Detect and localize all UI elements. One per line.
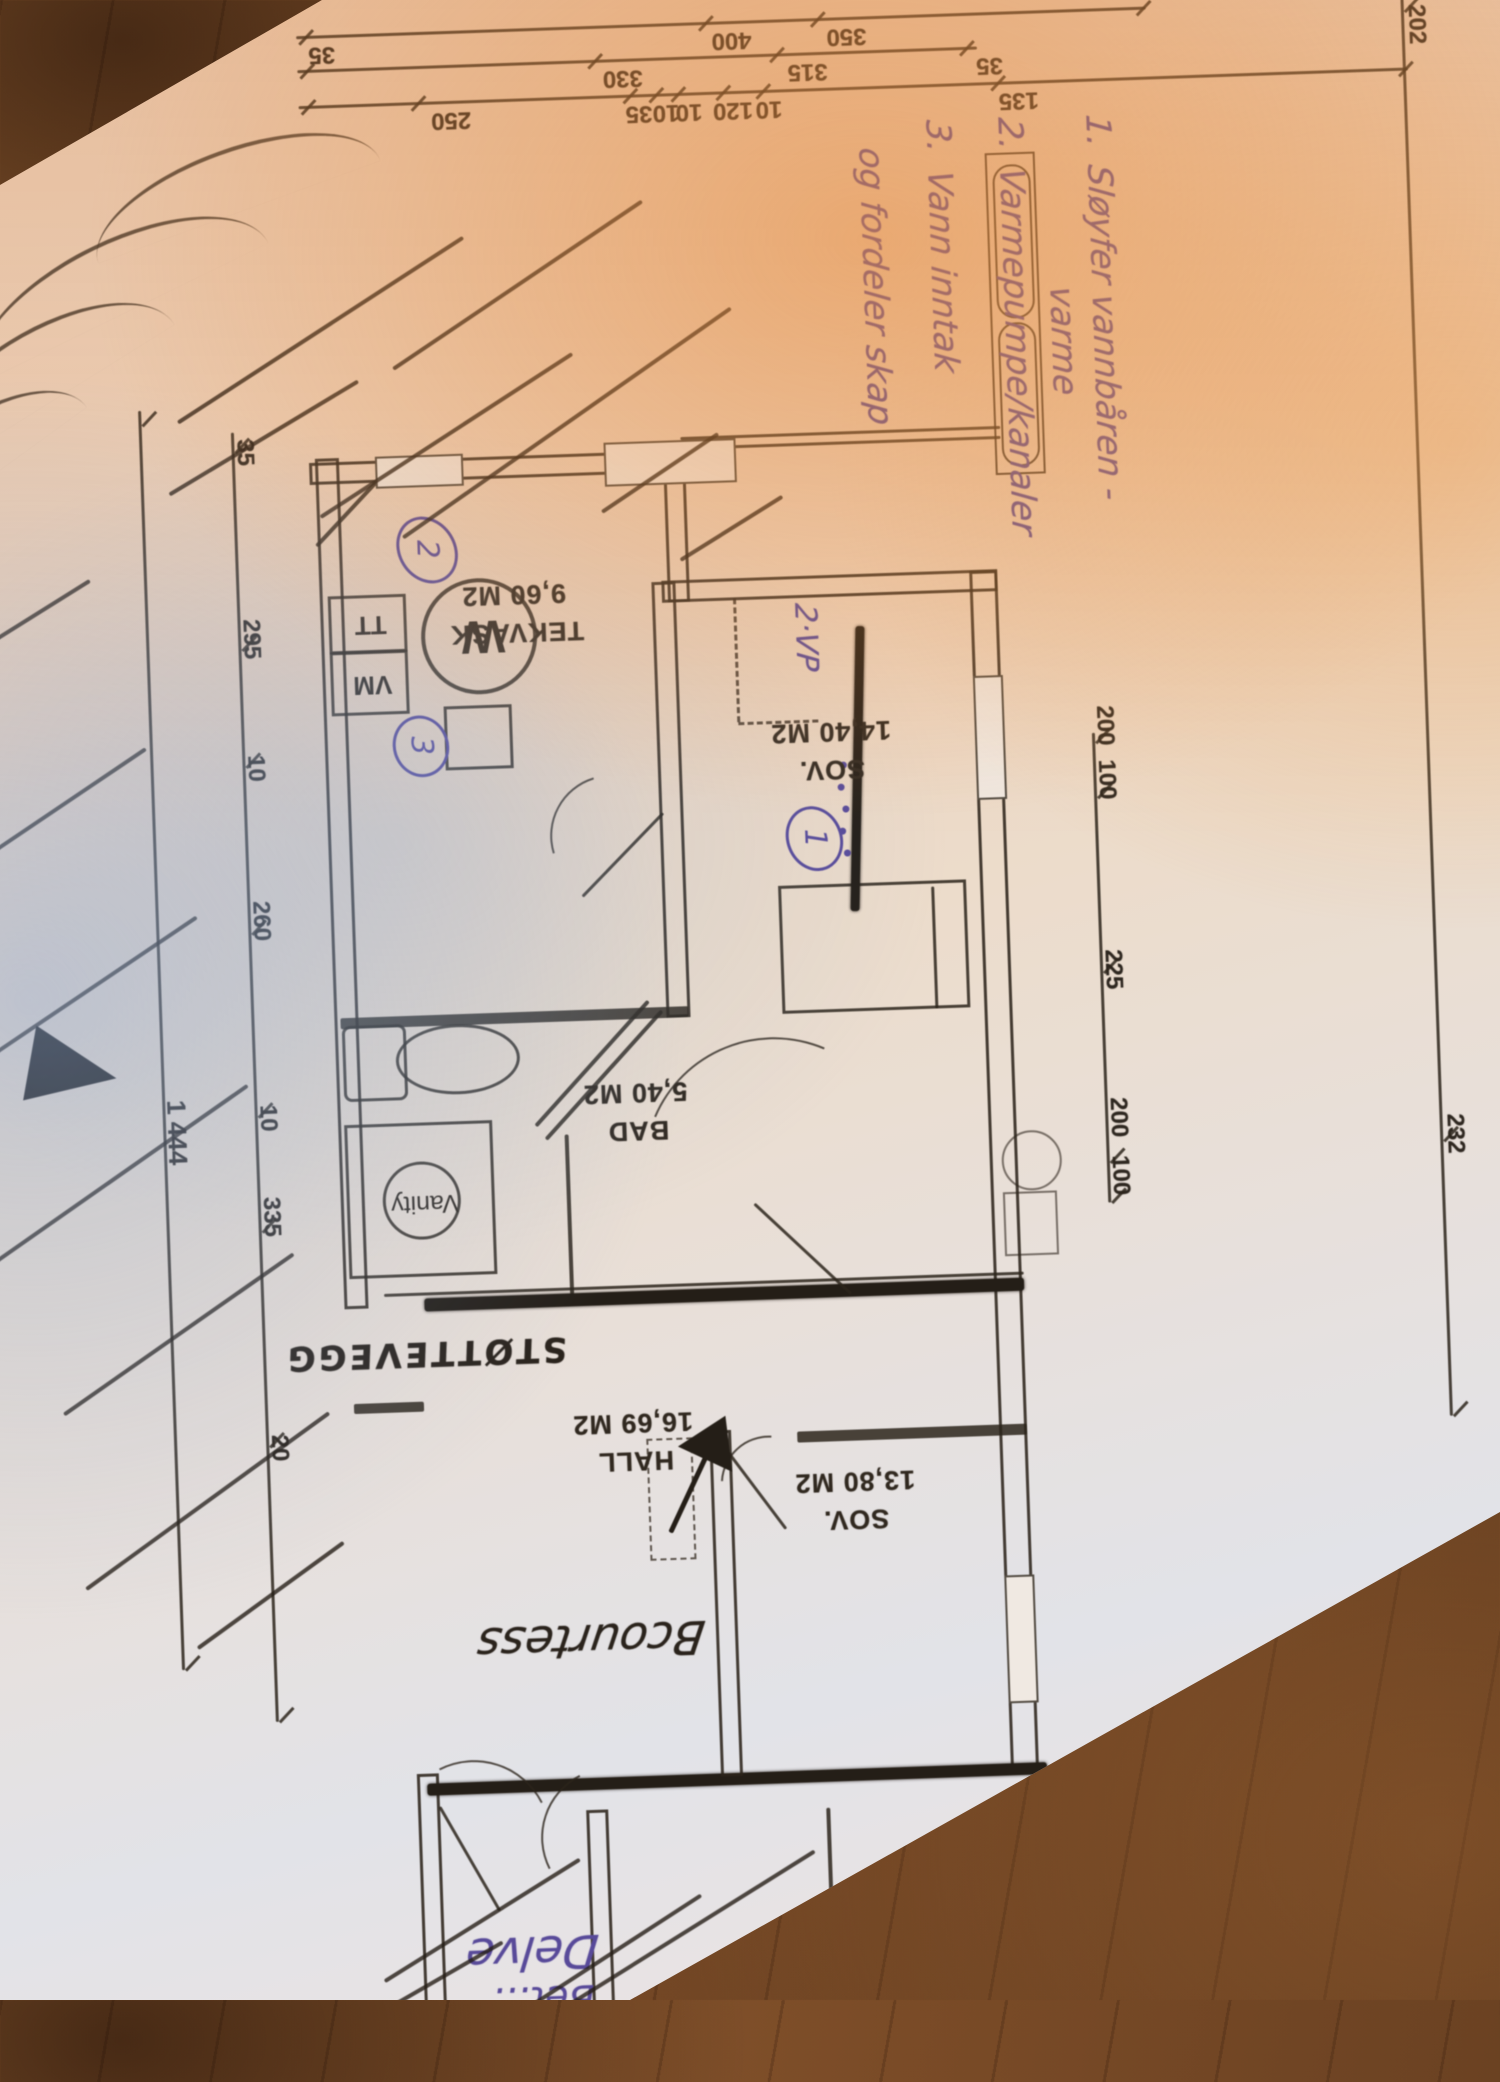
- circled-1-digit: 1: [797, 829, 833, 849]
- dim-left-200a: 200: [1104, 1097, 1133, 1138]
- hatch-stroke: [680, 495, 784, 562]
- outdoor-circle: [1001, 1129, 1063, 1191]
- bed-sov1: [778, 879, 970, 1013]
- hatch-stroke: [0, 1084, 249, 1270]
- note-1-number: 1.: [1077, 113, 1118, 149]
- note-1-line2: varme: [1041, 284, 1085, 396]
- note-3-line2: og fordeler skap: [850, 146, 900, 427]
- vp-note: 2·VP: [787, 602, 824, 672]
- vanity-label: Vanity: [391, 1188, 460, 1219]
- dim-row1-400: 400: [711, 25, 752, 54]
- window-sov1: [973, 675, 1007, 800]
- annex-status: IKKE UTLEIED: [740, 1935, 927, 1970]
- dim-row3-10c: 10: [652, 98, 680, 127]
- dimension-tick: [185, 1655, 201, 1672]
- room-area-hall: 16,69 M2: [572, 1405, 694, 1440]
- note-3-line1: Vann inntak: [919, 169, 966, 375]
- dimension-tick: [1453, 1401, 1469, 1418]
- solid-triangle-mark: [23, 1026, 123, 1116]
- hatch-stroke: [778, 1830, 960, 1959]
- dimension-tick: [279, 1707, 295, 1724]
- heating-dot: [844, 849, 851, 856]
- hatch-stroke: [0, 580, 91, 705]
- fixture-box-3: [444, 704, 514, 770]
- room-area-sov2: 13,80 M2: [794, 1464, 916, 1499]
- dim-row3-135: 135: [998, 85, 1039, 114]
- window-tekvask: [603, 438, 736, 487]
- wall-bad-left: [565, 1134, 575, 1294]
- wall-annex-2: [826, 1808, 837, 1998]
- hatch-stroke: [63, 1253, 294, 1416]
- hall-script-note: Bcourtess: [473, 1610, 708, 1672]
- floor-plan-paper: W VM TT Vanity: [0, 0, 1500, 2000]
- dim-line-left-far: [1400, 0, 1452, 1416]
- dim-left-225: 225: [1098, 949, 1127, 990]
- heating-dot: [842, 805, 849, 812]
- washer-label: VM: [353, 669, 393, 701]
- hatch-stroke: [850, 1928, 1014, 2048]
- vp-zone-dash-v: [733, 598, 740, 722]
- note-2-number: 2.: [989, 116, 1030, 152]
- annex-area: 15,42 M2: [718, 1969, 831, 2002]
- circled-1: 1: [776, 798, 853, 880]
- room-area-sov1: 14,40 M2: [770, 714, 892, 749]
- room-label-sov1: SOV.: [798, 753, 865, 786]
- toilet-bowl: [395, 1022, 521, 1096]
- circled-2-digit: 2: [409, 540, 445, 560]
- dim-row1-350: 350: [826, 21, 867, 50]
- dim-left-232: 232: [1440, 1113, 1469, 1154]
- hatch-stroke: [392, 200, 643, 371]
- dim-line-overall: [138, 411, 185, 1670]
- wall-sov2-bottom: [797, 1424, 1027, 1443]
- dim-row2-35: 35: [976, 51, 1004, 80]
- hatch-stroke: [85, 1412, 330, 1591]
- room-area-tekvask: 9,60 M2: [461, 577, 567, 612]
- wall-exterior-sov1: [661, 569, 998, 603]
- wall-connector: [354, 1402, 424, 1414]
- dim-row3-10a: 10: [755, 94, 783, 123]
- room-label-sov2: SOV.: [823, 1502, 890, 1535]
- dim-row2-315: 315: [787, 57, 828, 86]
- dim-row3-35: 35: [625, 99, 653, 128]
- dim-left-100b: 100: [1092, 759, 1121, 800]
- dim-right-260: 260: [246, 901, 275, 942]
- window-sov2: [1004, 1574, 1038, 1703]
- stottevegg-note: STØTTEVEGG: [284, 1329, 568, 1379]
- hatch-stroke: [705, 1886, 923, 2034]
- room-label-hall: HALL: [598, 1444, 675, 1478]
- hatch-stroke: [0, 748, 147, 902]
- room-area-bad: 5,40 M2: [582, 1075, 688, 1110]
- outdoor-box: [1003, 1190, 1059, 1256]
- room-label-bad: BAD: [607, 1114, 670, 1147]
- dim-line-row3: [299, 67, 1408, 109]
- dim-row3-250: 250: [431, 105, 472, 134]
- floor-plan-drawing: W VM TT Vanity: [0, 0, 1500, 2026]
- dim-left-200b: 200: [1090, 705, 1119, 746]
- dryer-label: TT: [354, 609, 387, 641]
- note-1-line1: Sløyfer vannbåren -: [1079, 163, 1131, 502]
- hatch-stroke: [320, 353, 574, 519]
- note-3-number: 3.: [917, 119, 958, 155]
- room-label-tekvask: TEKVASK: [450, 615, 585, 651]
- dimension-tick: [141, 411, 157, 428]
- circled-3-digit: 3: [403, 736, 439, 756]
